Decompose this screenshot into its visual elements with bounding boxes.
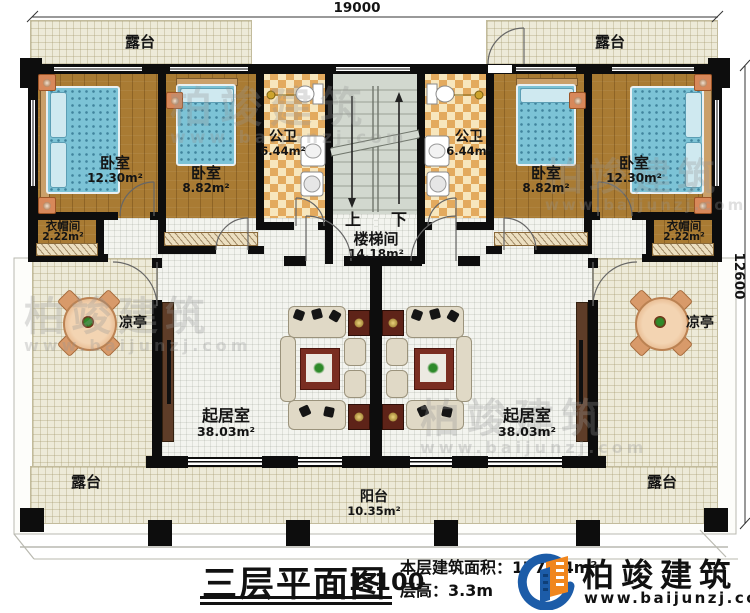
label-cloak-l: 衣帽间 2.22m²	[42, 220, 83, 243]
room-area: 6.44m²	[446, 145, 491, 157]
label-bedroom-l2: 卧室 8.82m²	[182, 166, 229, 194]
label-bedroom-r2: 卧室 8.82m²	[522, 166, 569, 194]
label-cloak-r: 衣帽间 2.22m²	[663, 220, 704, 243]
floor-height-label: 层高：	[400, 581, 448, 600]
label-terrace-bl: 露台	[71, 475, 101, 491]
label-terrace-tl: 露台	[125, 35, 155, 51]
floorplan-canvas: 柏竣建筑 www.baijunzj.com 柏竣建筑 www.baijunzj.…	[0, 0, 750, 613]
brand-logo-icon	[516, 552, 576, 610]
room-name: 公卫	[446, 130, 491, 145]
room-area: 38.03m²	[197, 425, 255, 438]
label-bedroom-r1: 卧室 12.30m²	[606, 156, 662, 184]
room-area: 12.30m²	[87, 172, 143, 185]
room-name: 阳台	[347, 490, 400, 505]
room-name: 卧室	[522, 166, 569, 182]
room-name: 起居室	[498, 408, 556, 425]
room-area: 14.18m²	[348, 248, 404, 261]
room-name: 卧室	[87, 156, 143, 172]
room-area: 6.44m²	[260, 145, 305, 157]
label-terrace-tr: 露台	[595, 35, 625, 51]
room-name: 公卫	[260, 130, 305, 145]
label-living-r: 起居室 38.03m²	[498, 408, 556, 438]
room-name: 起居室	[197, 408, 255, 425]
room-area: 8.82m²	[522, 182, 569, 195]
label-living-l: 起居室 38.03m²	[197, 408, 255, 438]
plan-linework	[0, 0, 750, 613]
floor-height-value: 3.3m	[448, 581, 493, 600]
label-bedroom-l1: 卧室 12.30m²	[87, 156, 143, 184]
label-terrace-br: 露台	[647, 475, 677, 491]
room-area: 10.35m²	[347, 505, 400, 517]
room-area: 2.22m²	[42, 232, 83, 243]
room-area: 2.22m²	[663, 232, 704, 243]
room-area: 38.03m²	[498, 425, 556, 438]
label-stairwell: 楼梯间 14.18m²	[348, 232, 404, 260]
label-balcony: 阳台 10.35m²	[347, 490, 400, 517]
room-name: 卧室	[182, 166, 229, 182]
label-bath-r: 公卫 6.44m²	[446, 130, 491, 157]
room-area: 8.82m²	[182, 182, 229, 195]
label-stair-down: 下	[391, 212, 407, 229]
dim-top-value: 19000	[334, 1, 381, 15]
room-area: 12.30m²	[606, 172, 662, 185]
label-stair-up: 上	[345, 212, 361, 229]
room-name: 卧室	[606, 156, 662, 172]
room-name: 楼梯间	[348, 232, 404, 248]
dim-right-value: 12600	[731, 250, 747, 302]
label-pavilion-r: 凉亭	[686, 316, 714, 331]
label-bath-l: 公卫 6.44m²	[260, 130, 305, 157]
floor-area-label: 本层建筑面积：	[400, 558, 512, 577]
title-underline-2	[200, 602, 392, 605]
label-pavilion-l: 凉亭	[119, 316, 147, 331]
title-underline-1	[200, 596, 392, 599]
brand-url: www.baijunzj.com	[584, 589, 750, 607]
